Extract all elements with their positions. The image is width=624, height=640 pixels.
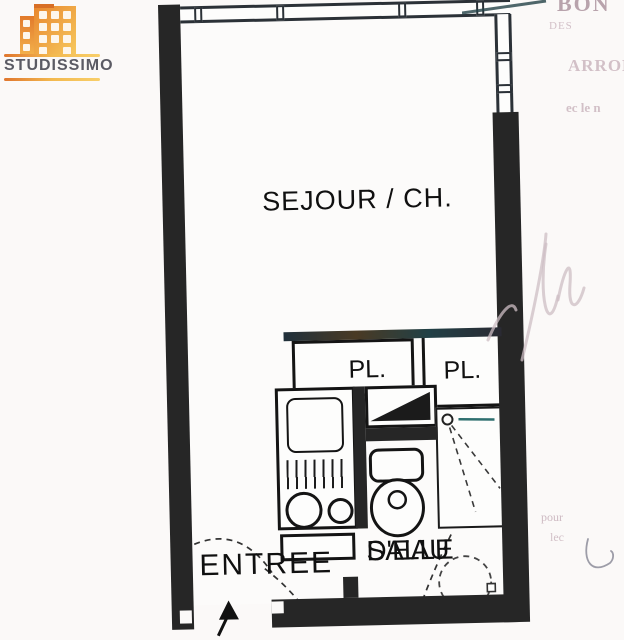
entry-arrow-icon bbox=[218, 600, 240, 635]
wall-left-notch bbox=[180, 610, 192, 623]
window-mullion bbox=[496, 52, 511, 61]
ghost-signature-strokes bbox=[440, 200, 624, 400]
ghost-text-pour: pour bbox=[541, 510, 563, 525]
scan-artifact-line bbox=[462, 0, 552, 16]
window-mullion bbox=[497, 84, 512, 93]
ghost-text-ec-le: ec le n bbox=[566, 100, 601, 116]
window-wall-right bbox=[494, 14, 513, 114]
studissimo-logo: STUDISSIMO bbox=[2, 2, 112, 88]
water-heater-box bbox=[365, 385, 438, 429]
wall-under-heater bbox=[366, 427, 438, 442]
wall-bottom bbox=[272, 594, 521, 628]
ghost-text-lec: lec bbox=[550, 530, 564, 545]
hob-burner-large bbox=[285, 491, 323, 529]
hob-burner-small bbox=[327, 498, 354, 525]
building-icon bbox=[14, 4, 100, 56]
logo-rule-bottom bbox=[4, 78, 100, 81]
ghost-pen-stroke bbox=[578, 535, 624, 583]
window-mullion bbox=[276, 5, 284, 20]
ghost-text-des: DES bbox=[549, 20, 573, 32]
window-mullion bbox=[194, 7, 202, 22]
closet-label-left: PL. bbox=[292, 354, 415, 386]
kitchen-sink bbox=[286, 397, 344, 453]
room-label-entree: ENTREE bbox=[178, 546, 354, 584]
shower-tray bbox=[435, 406, 506, 529]
wall-bottom-notch bbox=[272, 601, 284, 613]
kitchen-unit bbox=[275, 387, 358, 531]
kitchen-drainer-hatch bbox=[286, 459, 348, 489]
logo-brand-text: STUDISSIMO bbox=[4, 57, 108, 75]
ghost-text-arron: ARRON bbox=[568, 56, 624, 76]
salle-deau-line2: D'EAU bbox=[366, 533, 450, 569]
ghost-text-bon: BON bbox=[557, 0, 611, 17]
window-mullion bbox=[398, 2, 406, 17]
